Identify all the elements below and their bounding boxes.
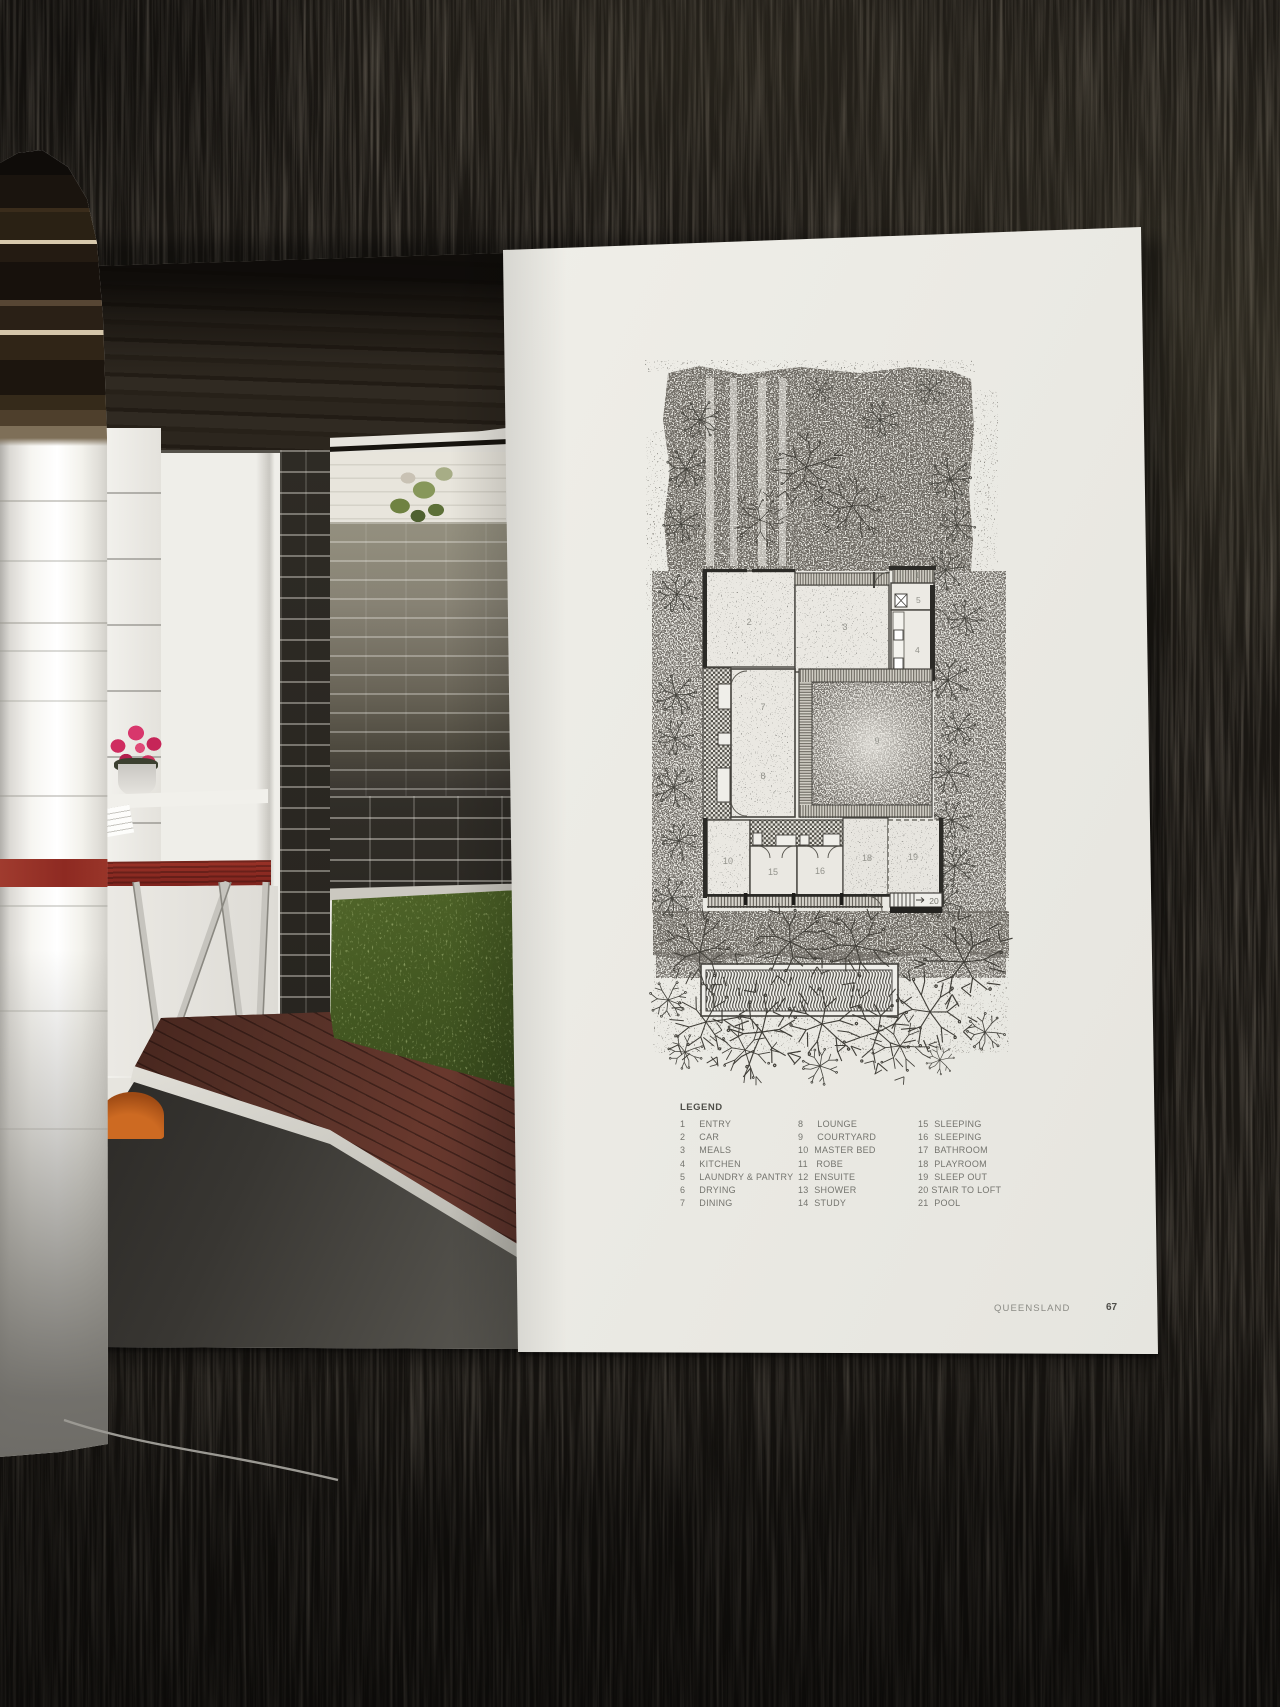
svg-text:5: 5 xyxy=(916,595,921,605)
svg-text:15: 15 xyxy=(768,867,778,877)
svg-text:16: 16 xyxy=(815,866,825,876)
svg-text:4: 4 xyxy=(915,645,920,655)
svg-text:19: 19 xyxy=(908,852,918,862)
svg-text:3: 3 xyxy=(842,622,847,632)
svg-text:18: 18 xyxy=(862,853,872,863)
svg-text:10: 10 xyxy=(723,856,733,866)
svg-text:1: 1 xyxy=(915,571,920,580)
svg-text:2: 2 xyxy=(746,617,751,627)
svg-text:8: 8 xyxy=(760,771,765,781)
svg-text:7: 7 xyxy=(760,702,765,712)
svg-text:20: 20 xyxy=(929,896,939,906)
svg-text:9: 9 xyxy=(874,736,879,746)
svg-text:6: 6 xyxy=(938,618,943,628)
